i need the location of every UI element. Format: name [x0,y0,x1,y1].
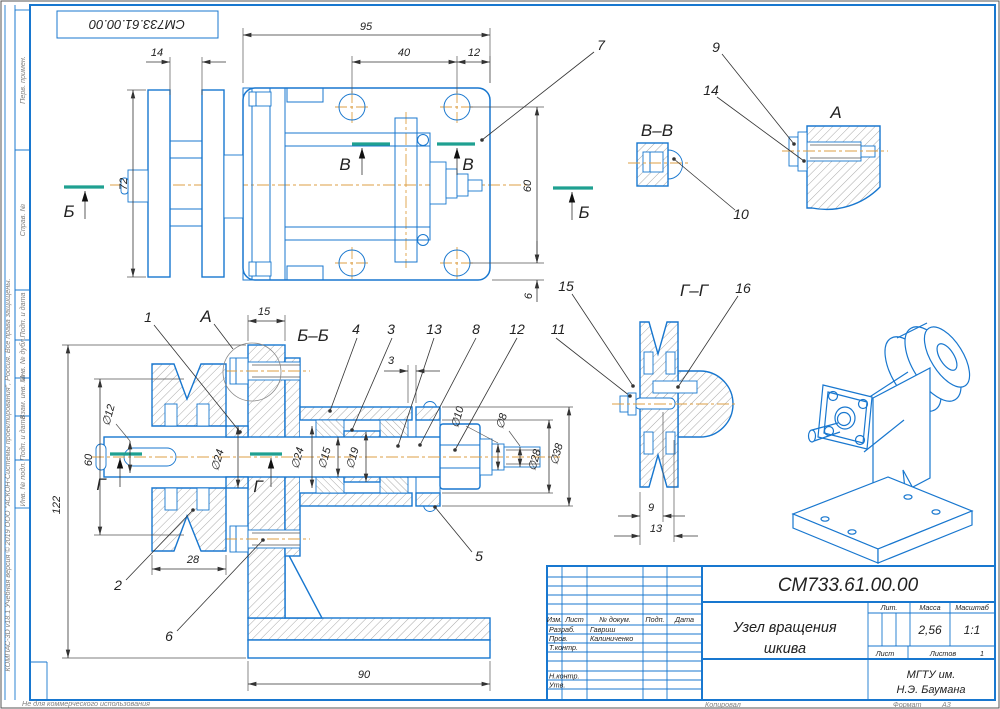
side-label-vzam: Взам. инв. № [18,375,27,420]
callout-15: 15 [558,278,574,294]
dim-15: 15 [258,306,271,318]
base-plate [248,618,490,640]
kompas-watermark: КОМПАС-3D v18.1 Учебная версия © 2019 ОО… [3,279,12,672]
non-commercial-note: Не для коммерческого использования [22,699,150,708]
tb-col-doc: № докум. [599,615,631,624]
tb-listov-value: 1 [980,649,984,658]
callout-9: 9 [712,39,720,55]
tb-list-label: Лист [875,649,895,658]
callout-12: 12 [509,321,525,337]
bearing [316,420,344,437]
housing-wall [300,407,412,420]
tb-col-podp: Подп. [645,615,664,624]
side-label-sprav: Справ. № [18,203,27,236]
section-vv-label: В–В [641,121,673,140]
bearing [316,476,344,493]
callout-2: 2 [113,577,122,593]
tb-title-line1: Узел вращения [732,620,837,636]
pulley-flange-top [148,90,170,277]
section-arrow-b-right: Б [578,203,589,222]
tb-role-tkontr: Т.контр. [549,643,578,652]
dim-40: 40 [398,47,411,59]
callout-8: 8 [472,321,480,337]
callout-4: 4 [352,321,360,337]
side-label-perv: Перв. примен. [18,56,27,104]
dim-28: 28 [186,554,200,566]
view-a-body [807,126,880,209]
tb-title-line2: шкива [764,641,806,657]
tb-name-prov: Калиниченко [590,634,633,643]
side-label-invdubl: Инв. № дубл. [18,337,27,381]
dim-90: 90 [358,669,371,681]
dim-9: 9 [648,502,654,514]
dim-60-front: 60 [83,453,95,466]
end-cap [416,493,440,506]
dim-13: 13 [650,523,663,535]
bushing [226,477,248,488]
callout-1: 1 [144,309,152,325]
tb-massa-value: 2,56 [917,623,942,637]
dim-12: 12 [468,47,480,59]
nut-top [430,162,446,204]
section-arrow-b-left: Б [63,202,74,221]
side-label-podp2: Подп. и дата [18,416,27,461]
tb-org-line2: Н.Э. Баумана [897,684,966,696]
tb-lit-label: Лит. [880,603,898,612]
tb-massa-label: Масса [919,603,940,612]
tb-col-list: Лист [564,615,584,624]
tb-role-razrab: Разраб. [549,625,575,634]
tb-role-prov: Пров. [549,634,568,643]
tb-kopiroval: Копировал [705,700,741,709]
callout-16: 16 [735,280,751,296]
corner-stamp-number: СМ733.61.00.00 [88,17,185,32]
dim-122: 122 [51,496,63,514]
tb-col-data: Дата [674,615,694,624]
dim-72: 72 [118,178,130,190]
callout-13: 13 [426,321,442,337]
bearing [380,476,408,493]
side-label-invpodl: Инв. № подл. [18,462,27,507]
tb-format-value: А3 [941,700,951,709]
tb-masshtab-value: 1:1 [964,623,981,637]
pulley-flange-top [202,90,224,277]
tb-format-label: Формат [893,700,922,709]
dim-60-top: 60 [522,179,534,192]
hex-nut [440,424,480,489]
callout-11: 11 [551,321,566,337]
section-arrow-v-right: В [462,155,473,174]
tb-listov-label: Листов [929,649,956,658]
tb-role-utv: Утв. [548,681,565,690]
callout-14: 14 [703,82,719,98]
section-arrow-v-left: В [339,155,350,174]
tb-masshtab-label: Масштаб [955,603,990,612]
dim-3: 3 [388,355,395,367]
section-bb-label: Б–Б [297,326,329,345]
side-label-podp1: Подп. и дата [18,293,27,338]
tb-doc-number: СМ733.61.00.00 [778,575,919,596]
dim-14: 14 [151,47,163,59]
callout-3: 3 [387,321,395,337]
callout-6: 6 [165,628,173,644]
dim-95: 95 [360,21,373,33]
gg-screw-slot [635,398,675,409]
tb-org-line1: МГТУ им. [907,669,956,681]
callout-7: 7 [597,37,606,53]
dim-6: 6 [523,292,535,299]
callout-10: 10 [733,206,749,222]
tb-name-razrab: Гавриш [590,625,615,634]
gg-key [653,381,697,393]
tb-col-izm: Изм. [547,615,562,624]
detail-a-label: А [199,307,211,326]
housing-wall [300,493,412,506]
tb-role-nkontr: Н.контр. [549,672,579,681]
drawing-sheet: Перв. примен. Справ. № Подп. и дата Инв.… [0,0,1000,709]
view-a-label: А [829,103,841,122]
callout-5: 5 [475,548,483,564]
section-gg-label: Г–Г [680,281,710,300]
